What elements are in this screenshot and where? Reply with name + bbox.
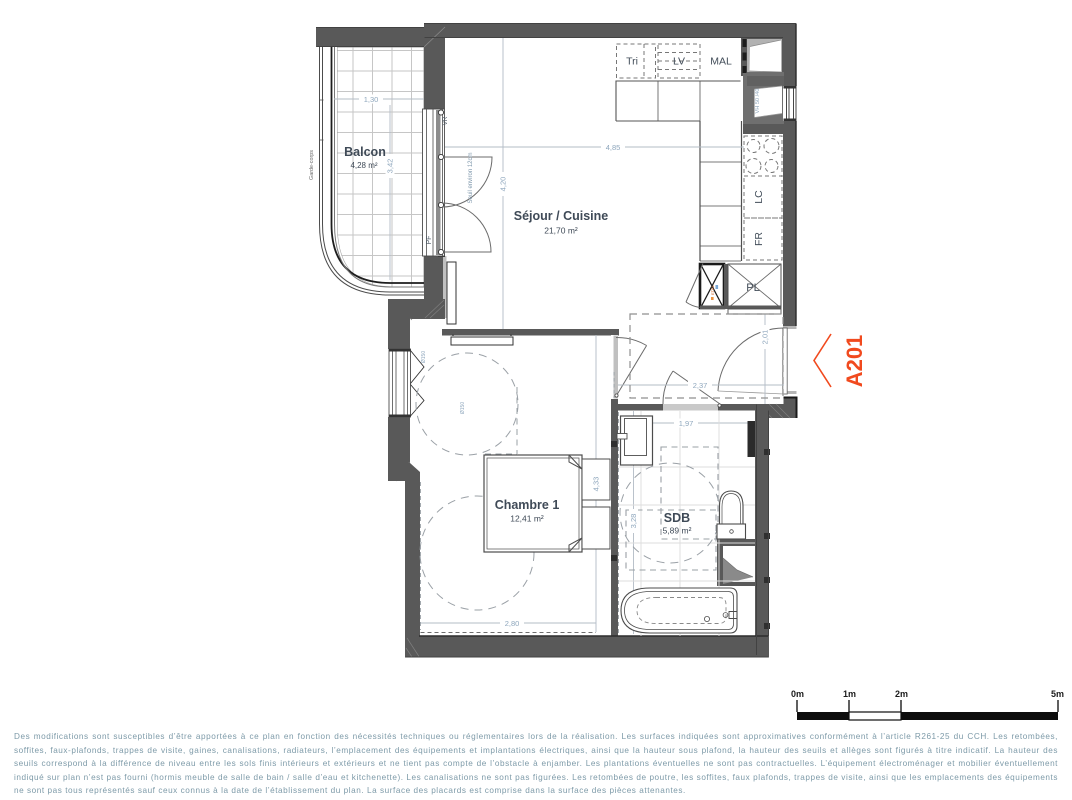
svg-text:Tri: Tri [626, 56, 638, 68]
svg-text:FR: FR [753, 232, 765, 246]
svg-text:4,28 m²: 4,28 m² [350, 161, 377, 170]
svg-text:MAL: MAL [710, 56, 732, 68]
svg-text:PF: PF [426, 236, 433, 245]
svg-text:ETEL: ETEL [710, 284, 715, 295]
svg-text:21,70 m²: 21,70 m² [544, 226, 578, 236]
svg-text:4,20: 4,20 [499, 177, 508, 192]
svg-text:A201: A201 [842, 335, 867, 388]
svg-text:2m: 2m [895, 689, 908, 699]
svg-text:1,97: 1,97 [679, 419, 694, 428]
svg-text:Garde-corps: Garde-corps [309, 150, 315, 180]
svg-text:2,01: 2,01 [761, 330, 770, 345]
svg-text:PL: PL [746, 282, 759, 294]
svg-text:Ø150: Ø150 [421, 351, 427, 363]
svg-text:Séjour / Cuisine: Séjour / Cuisine [514, 209, 609, 223]
svg-text:3,42: 3,42 [386, 159, 395, 174]
svg-text:4,85: 4,85 [606, 143, 621, 152]
svg-text:Seuil environ 12cm: Seuil environ 12cm [468, 152, 474, 203]
svg-text:Chambre 1: Chambre 1 [495, 498, 560, 512]
svg-text:LV: LV [673, 56, 685, 68]
svg-text:0m: 0m [791, 689, 804, 699]
svg-text:SDB: SDB [664, 511, 690, 525]
svg-text:2,80: 2,80 [505, 619, 520, 628]
svg-text:1m: 1m [843, 689, 856, 699]
svg-text:5m: 5m [1051, 689, 1064, 699]
svg-text:Ø150: Ø150 [460, 402, 466, 414]
svg-text:LC: LC [753, 190, 765, 204]
svg-text:1,30: 1,30 [364, 95, 379, 104]
svg-text:3,28: 3,28 [629, 514, 638, 529]
svg-text:Balcon: Balcon [344, 145, 386, 159]
svg-text:5,89 m²: 5,89 m² [663, 526, 692, 536]
svg-text:VR: VR [442, 116, 449, 125]
svg-text:4,33: 4,33 [592, 477, 601, 492]
svg-text:VH 50 /40: VH 50 /40 [755, 89, 761, 114]
svg-text:12,41 m²: 12,41 m² [510, 514, 544, 524]
svg-text:2,37: 2,37 [693, 381, 708, 390]
